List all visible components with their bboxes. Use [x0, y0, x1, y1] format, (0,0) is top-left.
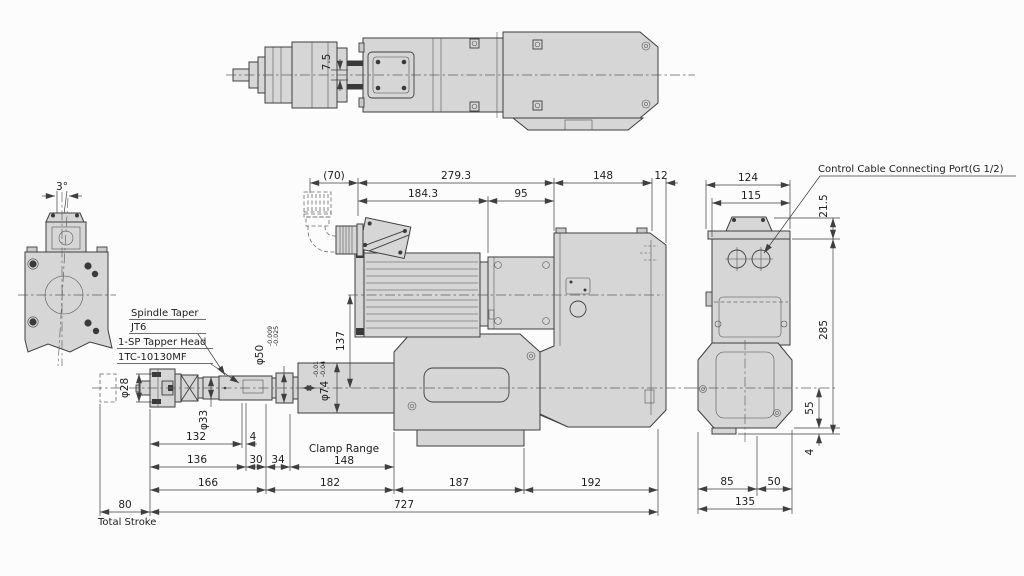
dim-dia74-tol-lower: -0.04 — [320, 361, 327, 377]
tapper-head-label: 1-SP Tapper Head — [118, 337, 206, 348]
dim-30: 30 — [249, 454, 262, 466]
dim-7-5: 7.5 — [321, 54, 333, 71]
terminal-box — [359, 218, 411, 259]
dim-dia50-tol-lower: -0.025 — [273, 326, 280, 346]
side-upper-body — [706, 239, 790, 345]
dim-727: 727 — [394, 499, 414, 511]
cable-gland — [336, 224, 363, 256]
spindle-taper-value: JT6 — [130, 322, 146, 333]
dim-85: 85 — [720, 476, 733, 488]
dim-192: 192 — [581, 477, 601, 489]
dim-182: 182 — [320, 477, 340, 489]
dim-dia74: φ74 — [319, 381, 331, 402]
dim-135: 135 — [735, 496, 755, 508]
dim-55: 55 — [804, 401, 816, 414]
dim-285: 285 — [818, 320, 830, 340]
dim-dia28: φ28 — [119, 378, 131, 398]
dim-12: 12 — [654, 170, 667, 182]
phantom-cable-connector — [304, 192, 336, 252]
left-view: 3° — [18, 181, 116, 366]
part-callouts: Spindle Taper JT6 1-SP Tapper Head 1TC-1… — [117, 308, 239, 383]
dim-166: 166 — [198, 477, 218, 489]
dim-136: 136 — [187, 454, 207, 466]
dim-dia74-tol-upper: -0.01 — [313, 361, 320, 377]
housing-foot — [417, 430, 524, 446]
dimension-drawing-page: 7.5 3° — [0, 0, 1024, 576]
dim-115: 115 — [741, 190, 761, 202]
dim-148-top: 148 — [593, 170, 613, 182]
dim-95: 95 — [514, 188, 527, 200]
clamp-range-label: Clamp Range — [309, 443, 379, 455]
dim-80: 80 — [118, 499, 131, 511]
dim-3deg: 3° — [56, 181, 68, 193]
spindle-taper-label: Spindle Taper — [131, 308, 199, 319]
gearbox — [480, 257, 554, 329]
dim-70: (70) — [323, 170, 345, 182]
dim-148-clamp: 148 — [334, 455, 354, 467]
dim-132: 132 — [186, 431, 206, 443]
dim-dia33: φ33 — [198, 410, 210, 430]
tapper-head-model: 1TC-10130MF — [118, 352, 187, 363]
dim-dia50: φ50 — [254, 345, 266, 365]
rear-block — [540, 228, 666, 427]
dim-137: 137 — [335, 331, 347, 351]
dim-50: 50 — [767, 476, 780, 488]
tapper-head-drawing: 7.5 3° — [0, 0, 1024, 576]
dim-4-side: 4 — [804, 448, 816, 455]
dim-21-5: 21.5 — [818, 194, 830, 217]
dim-184-3: 184.3 — [408, 188, 438, 200]
dim-187: 187 — [449, 477, 469, 489]
top-view: 7.5 — [226, 32, 695, 130]
motor — [355, 249, 480, 337]
control-cable-port-label: Control Cable Connecting Port(G 1/2) — [818, 164, 1004, 175]
front-view — [92, 192, 690, 446]
dim-124: 124 — [738, 172, 758, 184]
dim-279-3: 279.3 — [441, 170, 471, 182]
dim-34: 34 — [271, 454, 285, 466]
total-stroke-label: Total Stroke — [97, 517, 156, 528]
dim-4: 4 — [250, 431, 257, 443]
